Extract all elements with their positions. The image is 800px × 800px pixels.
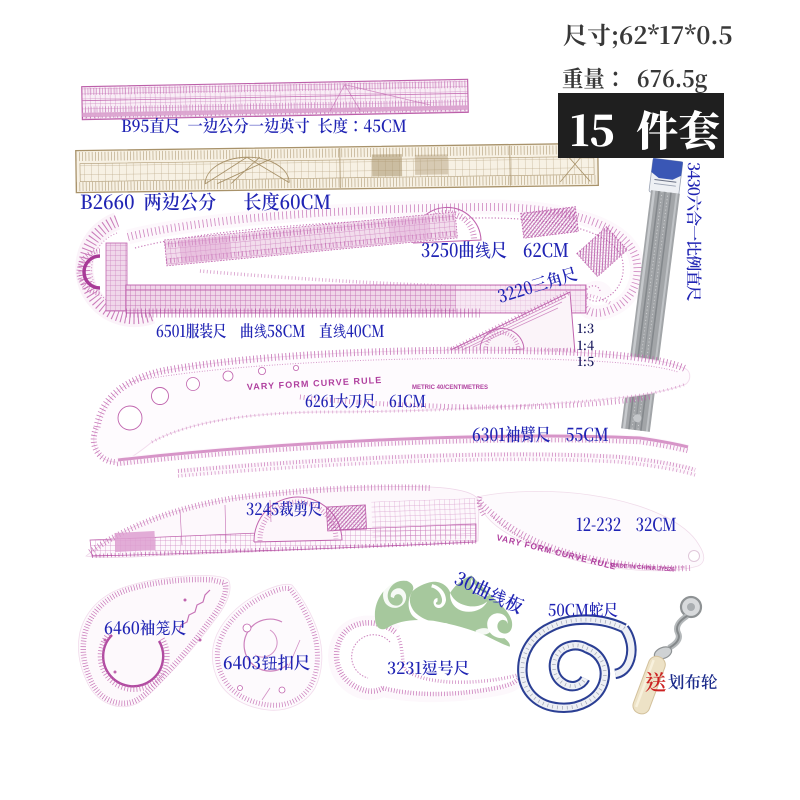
svg-text:METRIC 40/CENTIMETRES: METRIC 40/CENTIMETRES <box>412 385 488 391</box>
